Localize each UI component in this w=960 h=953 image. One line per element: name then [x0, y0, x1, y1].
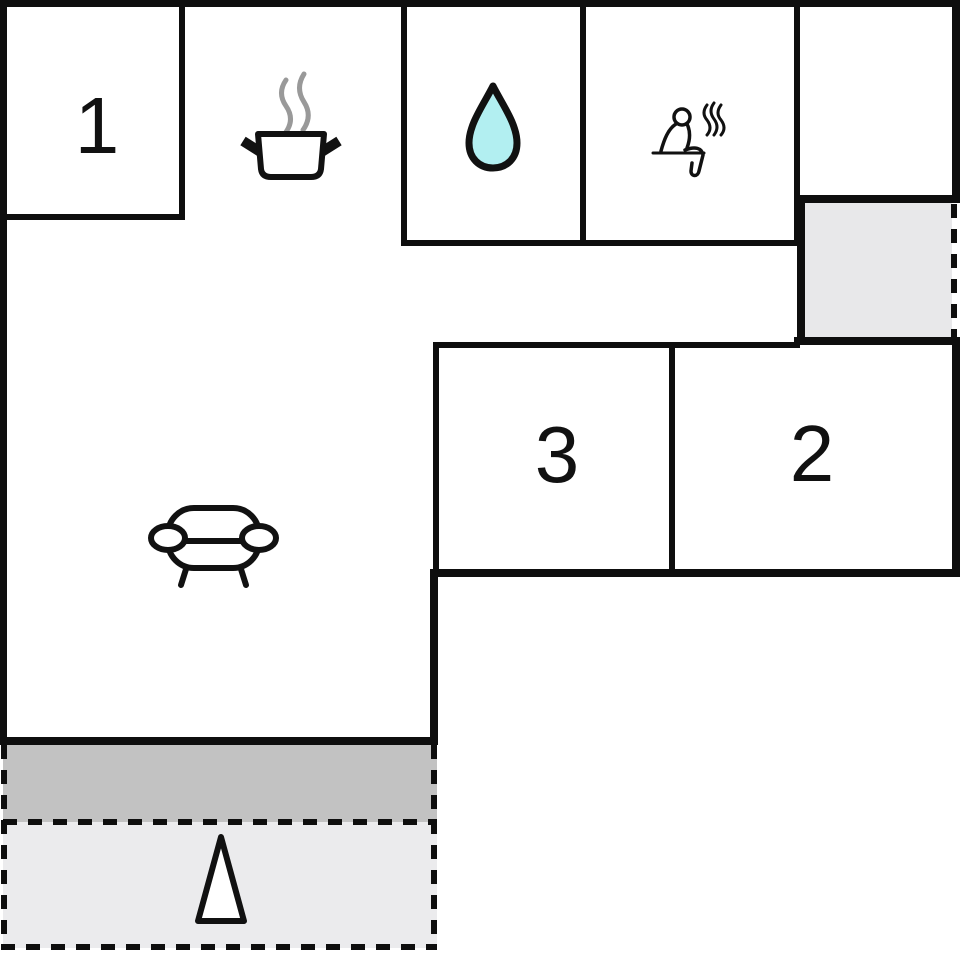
north-arrow-icon: [198, 837, 244, 921]
sauna-person-icon: [653, 103, 724, 176]
water-drop-icon: [469, 86, 517, 168]
plan-icons: [0, 0, 960, 953]
sofa-icon: [151, 508, 276, 585]
floor-plan: 1 2 3: [0, 0, 960, 953]
cooking-pot-icon: [243, 74, 339, 177]
